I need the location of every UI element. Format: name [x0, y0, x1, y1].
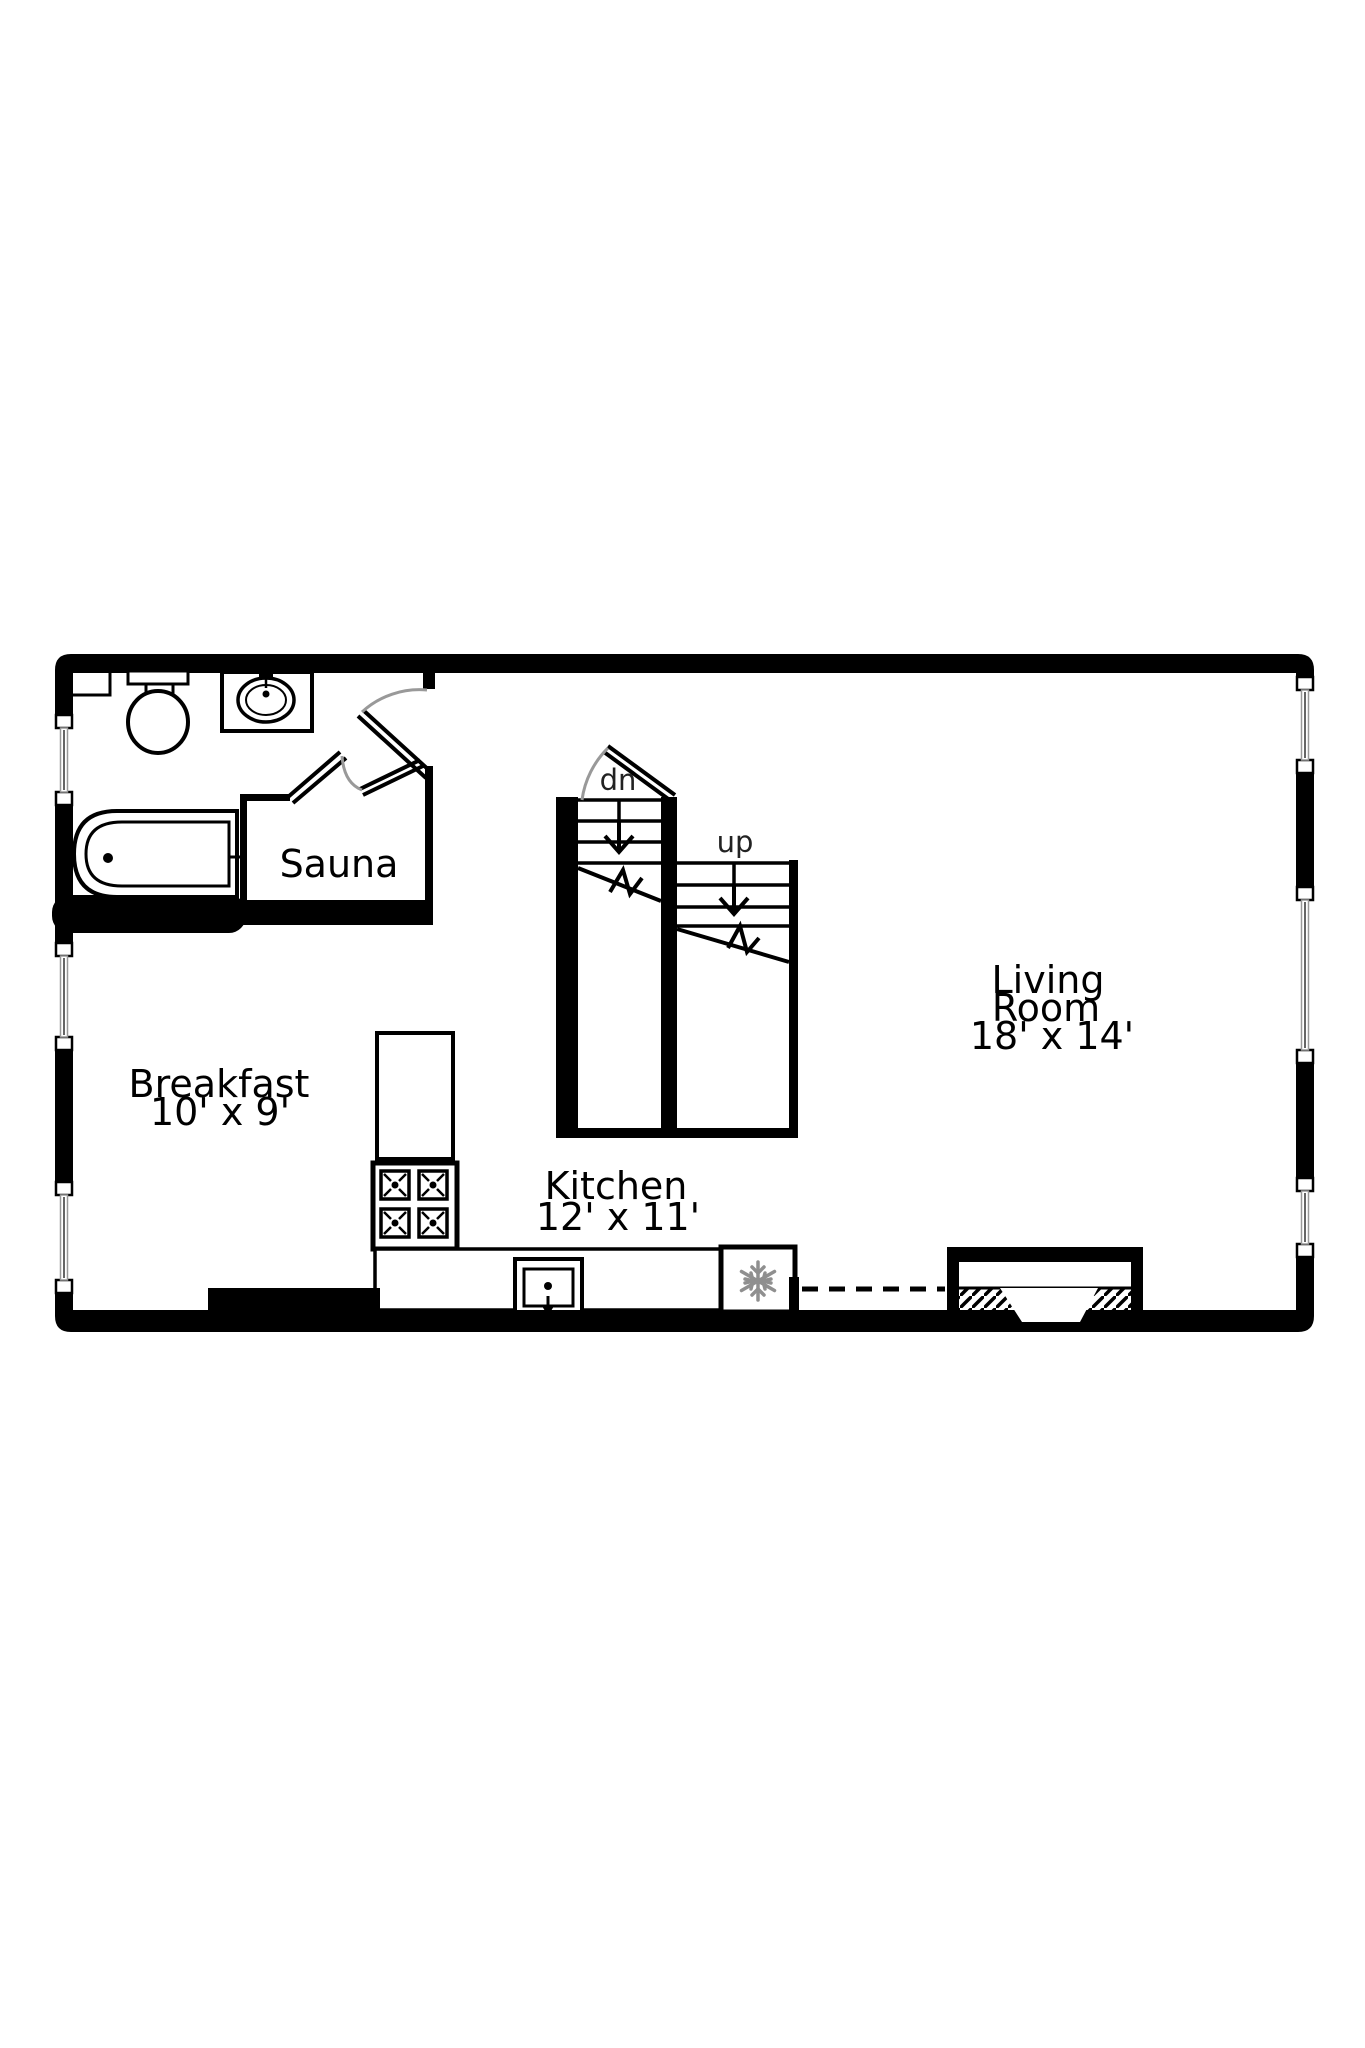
stairs-up-icon	[677, 863, 789, 962]
bathroom-partition-wall	[73, 673, 110, 695]
kitchen-sink-icon	[515, 1259, 582, 1316]
stairs-down-icon	[578, 800, 661, 901]
hall-door-jamb	[423, 673, 435, 689]
window-right-2-icon	[1295, 887, 1315, 1063]
burner-icon	[381, 1209, 409, 1237]
sink-icon	[222, 666, 312, 731]
fridge-jamb	[789, 1277, 799, 1312]
counter-peninsula	[208, 1288, 380, 1332]
stairs-down-label: dn	[600, 763, 637, 797]
breakfast-dims: 10' x 9'	[150, 1090, 290, 1134]
fridge-icon	[721, 1247, 799, 1312]
burner-icon	[419, 1171, 447, 1199]
window-right-3-icon	[1295, 1178, 1315, 1257]
floor-plan: dn up	[0, 0, 1365, 2048]
toilet-icon	[128, 671, 188, 753]
burner-icon	[381, 1171, 409, 1199]
sauna-room	[240, 752, 433, 925]
burner-icon	[419, 1209, 447, 1237]
window-left-2-icon	[54, 943, 74, 1050]
window-left-1-icon	[54, 715, 74, 805]
floor-plan-page: dn up	[0, 0, 1365, 2048]
bathtub-icon	[74, 811, 243, 897]
window-left-3-icon	[54, 1182, 74, 1293]
kitchen-dims: 12' x 11'	[536, 1195, 700, 1239]
bathroom-breakfast-divider-wall	[52, 895, 246, 933]
fireplace-icon	[947, 1247, 1143, 1330]
stove-icon	[373, 1163, 457, 1249]
sauna-label: Sauna	[280, 842, 399, 886]
living-room-dims: 18' x 14'	[970, 1014, 1134, 1058]
bathroom-door-arc-icon	[362, 690, 427, 712]
kitchen-cabinet	[377, 1033, 453, 1159]
stairs-up-label: up	[717, 825, 754, 859]
window-right-1-icon	[1295, 677, 1315, 773]
bathroom-door-icon	[358, 690, 431, 778]
stairwell: dn up	[556, 746, 798, 1138]
